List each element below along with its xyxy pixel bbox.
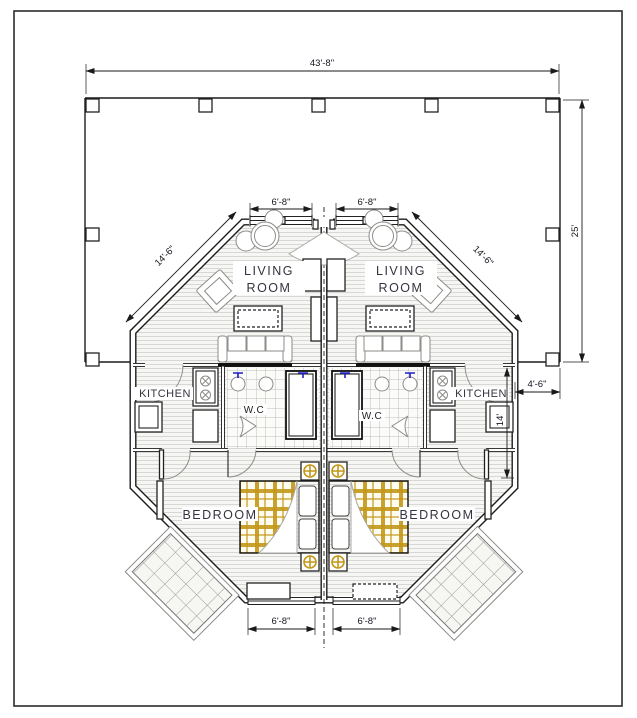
label-living-right-1: LIVING bbox=[376, 264, 426, 278]
bathtub-right bbox=[332, 371, 362, 439]
label-living-right-2: ROOM bbox=[379, 281, 424, 295]
dim-window-label: 6'-8" bbox=[358, 616, 377, 627]
label-bedroom-left: BEDROOM bbox=[182, 508, 257, 522]
tall-unit-right bbox=[327, 297, 337, 341]
label-kitchen-right: KITCHEN bbox=[455, 388, 507, 400]
wash-basin bbox=[403, 377, 417, 391]
wash-basin bbox=[375, 377, 389, 391]
label-living-left-2: ROOM bbox=[247, 281, 292, 295]
sofa-right bbox=[356, 336, 430, 367]
coffee-table-right bbox=[366, 306, 414, 331]
window-bench-right bbox=[353, 584, 397, 599]
coffee-table-left bbox=[234, 306, 282, 331]
dim-side-offset-label: 4'-6" bbox=[528, 379, 547, 390]
cabinet-left bbox=[303, 259, 321, 291]
wash-basin bbox=[259, 377, 273, 391]
kitchen-sink-left bbox=[135, 402, 162, 432]
drawing-page: LIVING ROOM LIVING ROOM KITCHEN KITCHEN … bbox=[0, 0, 637, 718]
cabinet-right bbox=[327, 259, 345, 291]
counter-right bbox=[430, 410, 455, 442]
dim-window-label: 6'-8" bbox=[358, 197, 377, 208]
nightstand bbox=[301, 462, 319, 480]
nightstand bbox=[329, 553, 347, 571]
dim-overall-width-label: 43'-8" bbox=[310, 58, 334, 69]
dim-side-depth-label: 14' bbox=[495, 414, 506, 427]
wash-basin bbox=[231, 377, 245, 391]
dim-window-label: 6'-8" bbox=[272, 197, 291, 208]
sofa-left bbox=[218, 336, 292, 367]
label-wc-right: W.C bbox=[362, 411, 382, 422]
nightstand bbox=[329, 462, 347, 480]
floor-plan-canvas: LIVING ROOM LIVING ROOM KITCHEN KITCHEN … bbox=[0, 0, 637, 718]
label-bedroom-right: BEDROOM bbox=[399, 508, 474, 522]
stove-left bbox=[193, 368, 218, 406]
dim-overall-depth-label: 25' bbox=[570, 225, 581, 238]
dim-window-label: 6'-8" bbox=[272, 616, 291, 627]
label-living-left-1: LIVING bbox=[244, 264, 294, 278]
window-bench-left bbox=[247, 583, 290, 599]
label-wc-left: W.C bbox=[244, 405, 264, 416]
nightstand bbox=[301, 553, 319, 571]
label-kitchen-left: KITCHEN bbox=[139, 388, 191, 400]
tall-unit-left bbox=[311, 297, 321, 341]
bathtub-left bbox=[286, 371, 316, 439]
counter-left bbox=[193, 410, 218, 442]
